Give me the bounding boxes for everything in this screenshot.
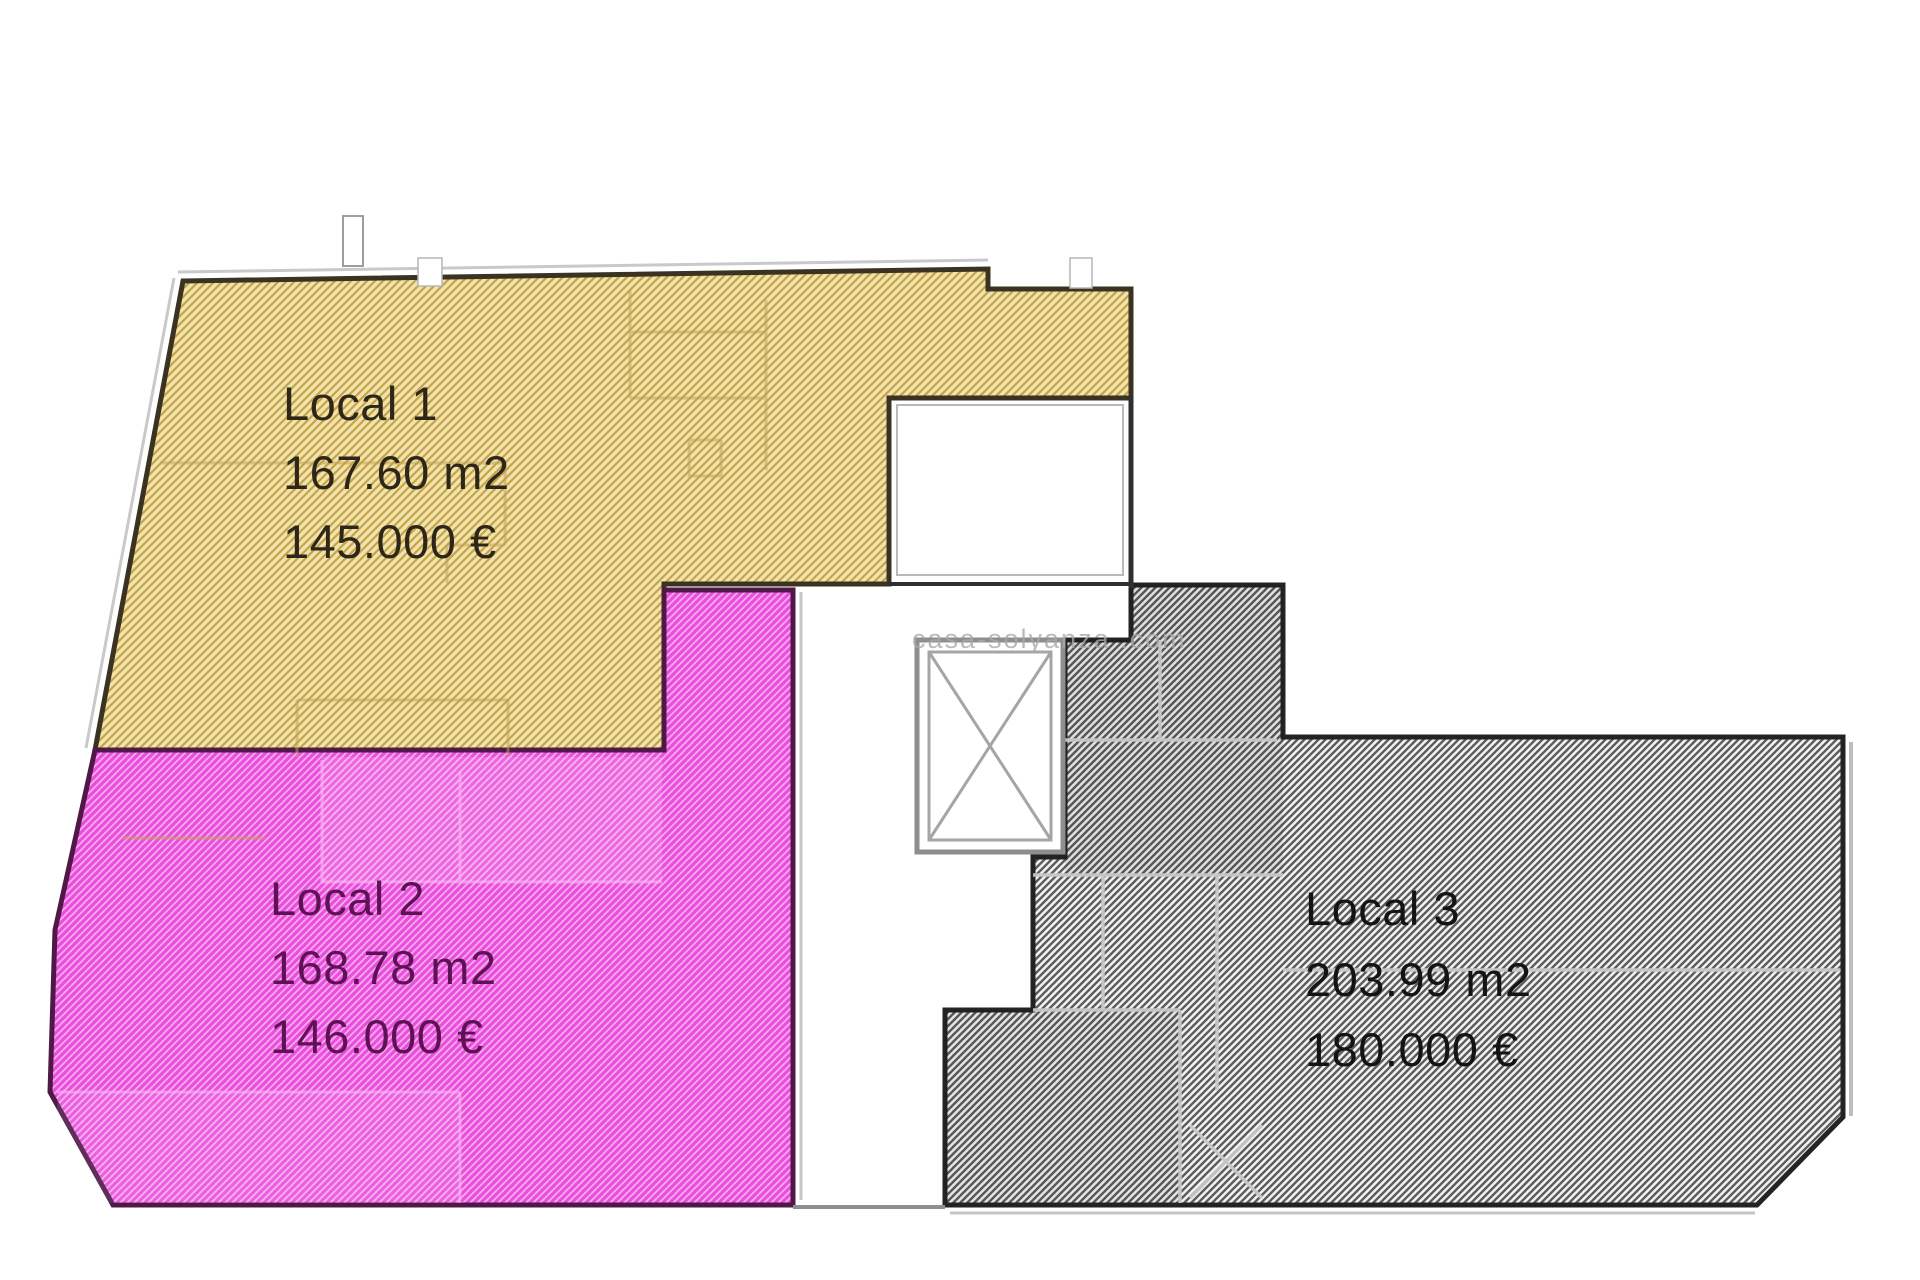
local-2-room-overlay xyxy=(322,757,662,882)
local-2-name-label: Local 2 xyxy=(270,872,425,925)
local-1-price-label: 145.000 € xyxy=(283,515,497,568)
local-2-room-overlay-2 xyxy=(57,1092,460,1203)
top-wall-notch-3 xyxy=(1070,258,1092,288)
floorplan-page: casa-solyanza .com Local 1 167.60 m2 145… xyxy=(0,0,1920,1280)
local-3-room-overlay-2 xyxy=(1065,640,1131,875)
local-3-room-overlay-3 xyxy=(945,1010,1180,1203)
top-wall-notch-2 xyxy=(418,258,442,286)
local-1-name-label: Local 1 xyxy=(283,377,438,430)
local-3-name-label: Local 3 xyxy=(1305,882,1460,935)
local-2-price-label: 146.000 € xyxy=(270,1010,484,1063)
floorplan-image: casa-solyanza .com Local 1 167.60 m2 145… xyxy=(0,0,1920,1280)
local-3-price-label: 180.000 € xyxy=(1305,1023,1519,1076)
local-1-area-label: 167.60 m2 xyxy=(283,446,510,499)
elevator-shaft xyxy=(917,640,1063,852)
patio-inner-face xyxy=(897,405,1123,575)
local-3-area-label: 203.99 m2 xyxy=(1305,953,1532,1006)
watermark-text: casa-solyanza .com xyxy=(912,624,1187,654)
local-2-area-label: 168.78 m2 xyxy=(270,941,497,994)
top-wall-notch-1 xyxy=(343,216,363,266)
